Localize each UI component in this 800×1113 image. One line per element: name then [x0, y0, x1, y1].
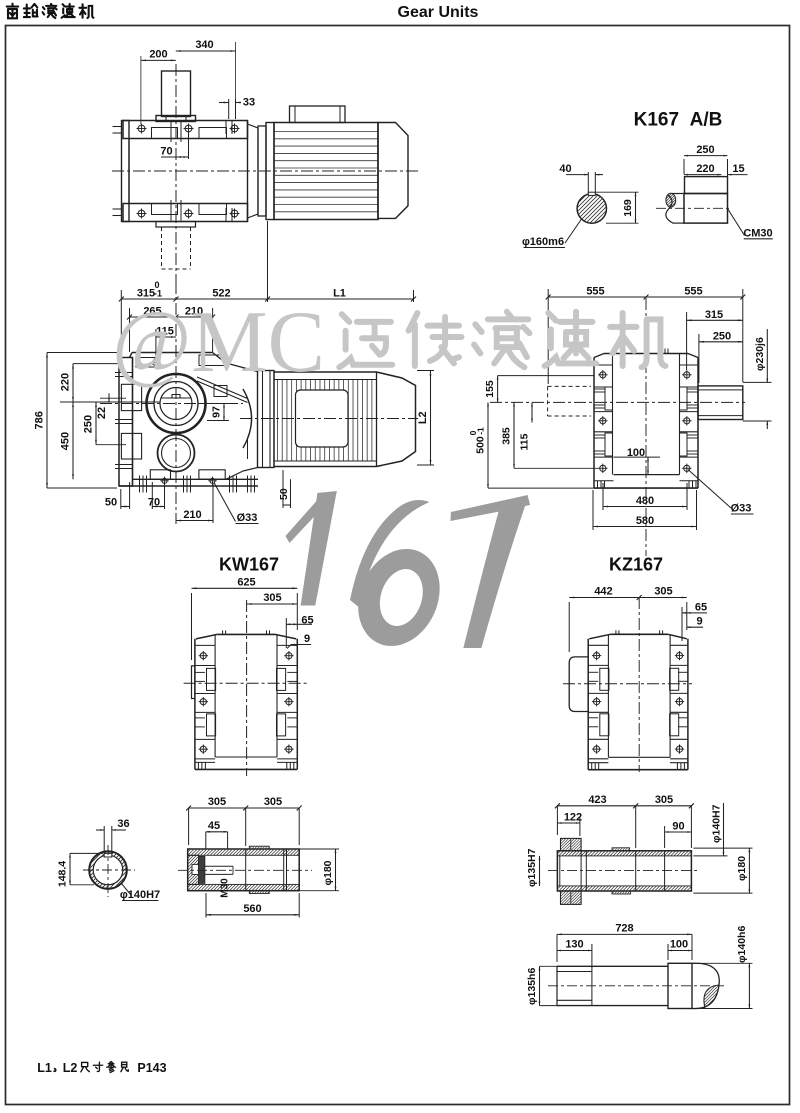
- svg-text:L1: L1: [333, 288, 346, 300]
- svg-text:70: 70: [160, 146, 172, 158]
- svg-text:65: 65: [301, 615, 313, 627]
- svg-text:220: 220: [696, 163, 714, 175]
- svg-text:210: 210: [183, 509, 201, 521]
- svg-text:φ140H7: φ140H7: [711, 804, 723, 843]
- svg-text:φ140h6: φ140h6: [736, 926, 748, 963]
- svg-text:100: 100: [670, 939, 688, 951]
- svg-text:305: 305: [208, 796, 226, 808]
- svg-text:250: 250: [83, 415, 95, 433]
- svg-text:40: 40: [559, 163, 571, 175]
- svg-text:φ180: φ180: [736, 856, 748, 881]
- svg-text:97: 97: [211, 406, 223, 418]
- svg-text:9: 9: [696, 616, 702, 628]
- svg-text:305: 305: [655, 794, 673, 806]
- svg-text:P143: P143: [137, 1061, 166, 1075]
- svg-text:φ135h6: φ135h6: [526, 968, 538, 1005]
- svg-text:155: 155: [484, 380, 496, 398]
- svg-text:580: 580: [636, 515, 654, 527]
- svg-text:625: 625: [237, 576, 255, 588]
- svg-text:130: 130: [565, 939, 583, 951]
- svg-text:385: 385: [501, 427, 513, 445]
- svg-text:50: 50: [105, 497, 117, 509]
- svg-text:@MC: @MC: [112, 294, 325, 391]
- svg-text:90: 90: [672, 821, 684, 833]
- svg-text:250: 250: [713, 330, 731, 342]
- svg-text:115: 115: [519, 433, 531, 450]
- svg-text:442: 442: [594, 586, 612, 598]
- svg-text:423: 423: [588, 794, 606, 806]
- svg-text:305: 305: [263, 592, 281, 604]
- svg-text:340: 340: [195, 39, 213, 51]
- svg-text:169: 169: [622, 199, 634, 217]
- svg-text:L1: L1: [37, 1061, 52, 1075]
- svg-text:KZ167: KZ167: [609, 555, 663, 575]
- svg-text:45: 45: [208, 820, 220, 832]
- svg-text:728: 728: [615, 922, 633, 934]
- svg-text:CM30: CM30: [743, 227, 772, 239]
- svg-text:9: 9: [304, 633, 310, 645]
- svg-text:65: 65: [695, 601, 707, 613]
- svg-text:0: 0: [468, 430, 478, 435]
- svg-text:786: 786: [34, 411, 46, 429]
- svg-text:122: 122: [564, 812, 582, 824]
- svg-text:22: 22: [96, 407, 108, 419]
- svg-text:250: 250: [696, 144, 714, 156]
- svg-text:560: 560: [243, 903, 261, 915]
- svg-text:305: 305: [264, 796, 282, 808]
- svg-text:70: 70: [148, 497, 160, 509]
- svg-text:Ø33: Ø33: [731, 503, 752, 515]
- svg-text:148.4: 148.4: [57, 861, 69, 887]
- svg-text:L2: L2: [417, 411, 429, 424]
- svg-text:480: 480: [636, 495, 654, 507]
- svg-text:36: 36: [117, 818, 129, 830]
- svg-text:φ160m6: φ160m6: [522, 236, 564, 248]
- svg-text:450: 450: [60, 432, 72, 450]
- svg-text:220: 220: [60, 373, 72, 391]
- svg-text:φ180: φ180: [322, 860, 334, 885]
- svg-text:L2: L2: [63, 1061, 78, 1075]
- svg-text:φ135H7: φ135H7: [526, 848, 538, 887]
- svg-text:200: 200: [149, 49, 167, 61]
- svg-text:KW167: KW167: [219, 555, 279, 575]
- svg-text:Ø33: Ø33: [237, 512, 258, 524]
- svg-text:K167 A/B: K167 A/B: [634, 110, 723, 131]
- svg-text:500: 500: [475, 436, 487, 454]
- svg-text:555: 555: [684, 286, 702, 298]
- svg-text:50: 50: [278, 488, 290, 500]
- svg-text:555: 555: [586, 286, 604, 298]
- svg-text:100: 100: [627, 447, 645, 459]
- svg-text:M30: M30: [220, 878, 231, 898]
- svg-text:315: 315: [705, 309, 723, 321]
- svg-text:305: 305: [654, 586, 672, 598]
- svg-text:φ140H7: φ140H7: [120, 889, 160, 901]
- svg-text:Gear Units: Gear Units: [398, 4, 479, 21]
- svg-text:φ230j6: φ230j6: [754, 337, 766, 371]
- svg-text:0: 0: [154, 280, 159, 290]
- svg-text:15: 15: [732, 163, 744, 175]
- svg-text:33: 33: [243, 97, 255, 109]
